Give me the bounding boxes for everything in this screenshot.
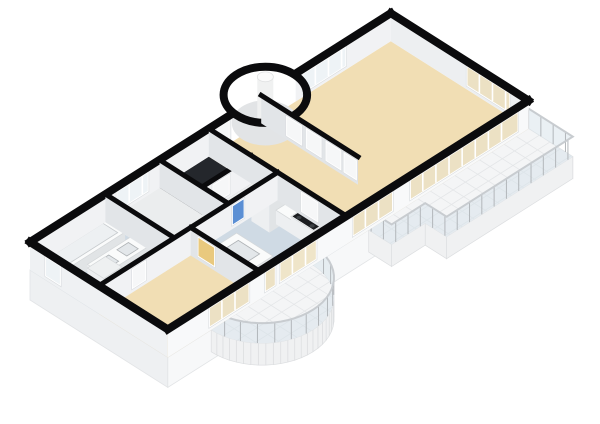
floor-plan-3d-view [0, 0, 600, 424]
floor-plan-viewport [0, 0, 600, 424]
